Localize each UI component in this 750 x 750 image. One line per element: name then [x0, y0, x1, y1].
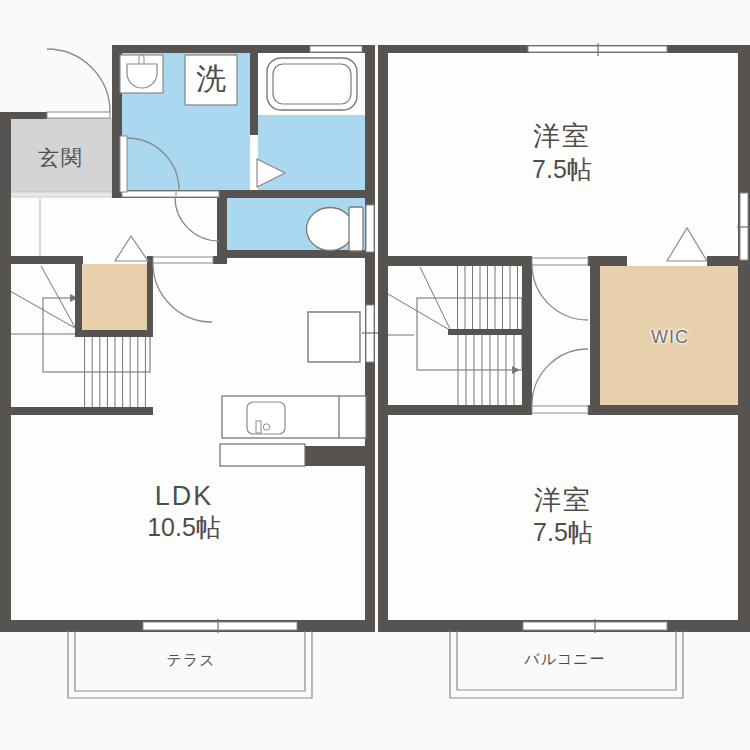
room-closet-1f: [82, 264, 147, 330]
ldk-door-leaf: [153, 257, 213, 263]
ldk-size-label: 10.5帖: [147, 513, 221, 542]
floor-plan-drawing: [0, 0, 750, 750]
washbasin-icon: [120, 55, 163, 93]
wic-label: WIC: [651, 327, 689, 348]
entrance-label: 玄関: [38, 146, 84, 170]
entrance-door-arc: [47, 49, 110, 112]
kitchen-partition: [305, 446, 366, 466]
bedroom-lower-name-label: 洋室: [534, 485, 592, 516]
bath-window: [310, 46, 362, 52]
bedroom-upper-door-leaf: [532, 258, 588, 265]
entrance-door-leaf: [47, 112, 110, 118]
refrigerator-space: [308, 312, 360, 362]
ldk-name-label: LDK: [155, 481, 214, 512]
toilet-door-leaf: [176, 191, 219, 197]
washroom-door-opening: [122, 191, 177, 197]
kitchen-faucet-icon: [256, 421, 261, 433]
floor-plan: 玄関 洗 LDK 10.5帖 テラス 洋室 7.5帖 WIC 洋室 7.5帖 バ…: [0, 0, 750, 750]
toilet-window: [366, 205, 374, 252]
laundry-label: 洗: [196, 62, 226, 97]
kitchen-lower-counter: [220, 444, 305, 466]
bath-slide-track: [251, 135, 257, 190]
entrance-step: [10, 192, 112, 197]
washroom-door-panel: [120, 136, 127, 192]
balcony-label: バルコニー: [524, 650, 605, 667]
bedroom-lower-size-label: 7.5帖: [533, 518, 593, 547]
terrace-label: テラス: [166, 651, 215, 668]
terrace-sliding-window: [143, 622, 297, 630]
bedroom-lower-door-leaf: [532, 406, 588, 413]
bathtub-icon: [267, 58, 357, 110]
bedroom-upper-size-label: 7.5帖: [532, 155, 592, 184]
toilet-icon: [307, 207, 364, 251]
bedroom-upper-name-label: 洋室: [533, 121, 591, 152]
